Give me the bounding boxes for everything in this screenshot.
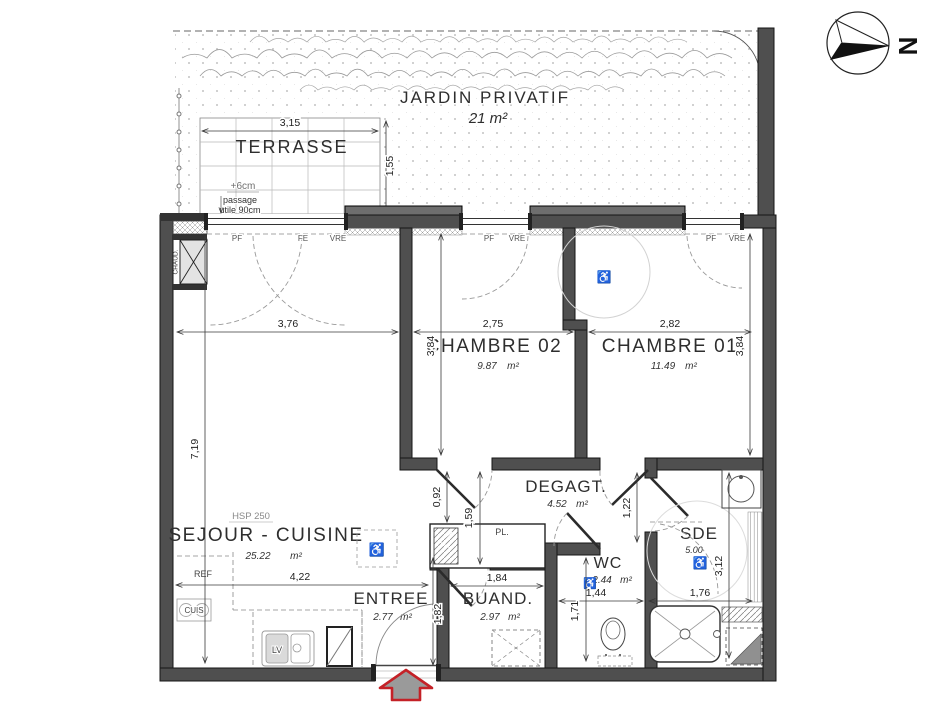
wall-south-right [437,668,776,681]
wall-north-sill [173,221,207,234]
boiler-label: CHAUD. [173,249,180,274]
wall-sejour-chambre02 [400,228,412,458]
french-door-sejour: PF FE VRE [204,213,348,325]
wall-north-corner [160,213,207,221]
sill-hatch-2 [530,228,685,235]
degagt-area: 4.52 [547,499,567,510]
opening-label-fe: FE [298,234,308,243]
dim-entree-height: 1,82 [432,604,444,625]
opening-label-vre: VRE [330,234,346,243]
dim-terrace-depth-label: 1,55 [384,156,396,177]
compass-north-label: N [893,37,923,56]
opening-label-vre: VRE [729,234,745,243]
wall-east [763,215,776,681]
chambre01-area: 11.49 [651,361,676,372]
wall-tile-band [748,512,762,602]
chambre01-label: CHAMBRE 01 [602,336,738,357]
fridge-label: REF [194,569,213,579]
opening-label-pf: PF [484,234,494,243]
washing-machine-slot [492,630,540,666]
dim-chambre01-height: 3,84 [734,336,746,357]
chambre02-area: 9.87 [477,361,497,372]
dim-degagt-east: 1,22 [621,498,633,519]
technical-hatch [722,607,762,622]
dim-sejour-height: 7,19 [189,439,201,460]
shower-drain [680,629,690,639]
dim-chambre02-width: 2,75 [483,318,504,330]
toilet [598,618,632,666]
wheelchair-icon: ♿ [597,270,612,284]
wheelchair-icon: ♿ [369,542,385,557]
buand-label: BUAND. [463,589,533,608]
wc-label: WC [594,555,623,572]
opening-label-pf: PF [232,234,242,243]
sejour-area-unit: m² [290,551,302,562]
dim-chambre02-height: 3,84 [425,336,437,357]
vanity-basin [722,470,761,508]
entrance-arrow-icon [380,670,432,700]
garden-area-label: 21 m² [468,110,508,127]
chambre02-area-unit: m² [507,361,519,372]
terrace-label: TERRASSE [235,137,348,157]
entree-area-unit: m² [400,612,412,623]
wall-wc-north [557,543,600,555]
passage-note-line2: utile 90cm [219,205,260,215]
sejour-label: SEJOUR - CUISINE [168,525,363,546]
wall-north-mid1 [345,215,462,228]
wall-south-left [160,668,375,681]
dim-sde-height: 3,12 [713,556,725,577]
floor-plan-page: JARDIN PRIVATIF 21 m² TERRASSE 3,15 1,55… [0,0,940,705]
ceiling-height-note: HSP 250 [232,511,270,522]
buand-area-unit: m² [508,612,520,623]
dim-terrace-width-label: 3,15 [280,117,301,129]
degagt-area-unit: m² [576,499,588,510]
wheelchair-icon: ♿ [693,556,708,570]
dim-wc-width: 1,44 [586,587,607,599]
passage-note-line1: passage [223,195,257,205]
dim-chambre01-width: 2,82 [660,318,681,330]
dim-sejour-width: 3,76 [278,318,299,330]
chambre01-area-unit: m² [685,361,697,372]
dim-degagt-west: 0,92 [431,487,443,508]
floor-plan: JARDIN PRIVATIF 21 m² TERRASSE 3,15 1,55… [0,0,940,705]
dim-degagt-mid: 1,59 [463,508,475,529]
technical-duct [726,628,762,665]
dim-buand-width: 1,84 [487,572,508,584]
buand-area: 2.97 [479,612,500,623]
window-chambre02: PF VRE [459,213,532,299]
wall-buand-wc [545,543,557,668]
garden-label: JARDIN PRIVATIF [400,88,570,107]
terrace-level-note: +6cm [231,181,256,192]
shower-door-knob [714,631,721,638]
dim-sde-width: 1,76 [690,587,711,599]
garden-east-wall [758,28,774,215]
chambre02-label: CHAMBRE 02 [426,336,562,357]
wall-west [160,215,173,681]
interior-walls [400,228,763,668]
sde-area: 5.00 [685,545,703,555]
closet-label: PL. [495,527,509,537]
entree-label: ENTREE [354,589,429,608]
sejour-area: 25.22 [244,551,270,562]
boiler-closet: CHAUD. [173,234,208,290]
shower-tray [650,606,721,662]
dim-kitchen-width: 4,22 [290,571,311,583]
window-chambre01: PF VRE [682,213,745,288]
opening-label-pf: PF [706,234,716,243]
dim-wc-height: 1,71 [569,601,581,622]
degagt-label: DEGAGT. [525,477,607,496]
entree-area: 2.77 [372,612,393,623]
wall-north-right [742,215,776,228]
cooktop-label: CUIS [184,606,203,615]
compass: N [827,12,923,74]
terrace: TERRASSE 3,15 1,55 +6cm passage utile 90… [200,117,396,215]
door-sde [651,478,688,516]
opening-label-vre: VRE [509,234,525,243]
dishwasher-label: LV [272,645,282,655]
hall-closet: PL. [430,524,545,568]
wc-area-unit: m² [620,575,632,586]
